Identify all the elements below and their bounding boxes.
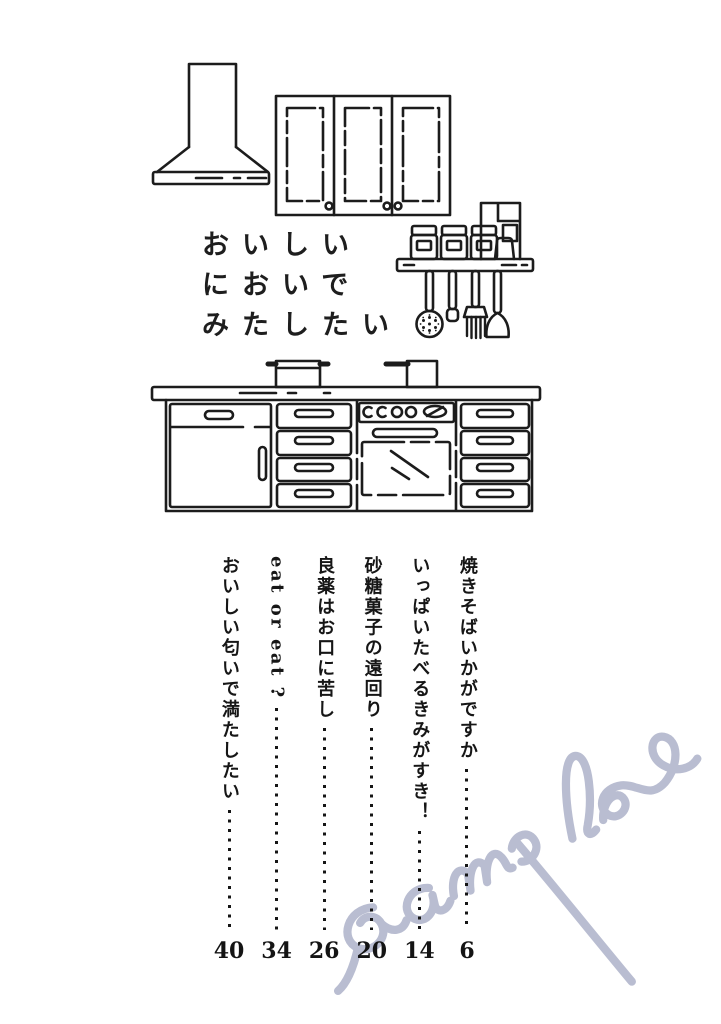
counter-icon xyxy=(152,387,540,511)
toc-entry-title: eat or eat ? xyxy=(267,556,287,700)
wall-cabinet-icon xyxy=(276,96,450,215)
toc-page-number: 6 xyxy=(459,940,474,962)
range-hood-icon xyxy=(153,64,269,184)
toc-dot-leader xyxy=(465,769,468,930)
toc-dot-leader xyxy=(275,708,278,930)
toc-dot-leader xyxy=(323,728,326,930)
page-title: おいしい においで みたしたい xyxy=(202,226,402,346)
page-title-line-3: みたしたい xyxy=(202,306,402,346)
spice-shelf-icon xyxy=(397,259,533,271)
toc-page-number: 40 xyxy=(214,940,245,962)
toc-dot-leader xyxy=(370,728,373,930)
toc-page-number: 20 xyxy=(356,940,387,962)
toc-entry-title: いっぱいたべるきみがすき！ xyxy=(409,556,429,823)
jar-icons xyxy=(411,226,497,259)
toc-page-number: 34 xyxy=(261,940,292,962)
hanging-utensil-icons xyxy=(417,271,509,338)
toc-page-number: 26 xyxy=(309,940,340,962)
table-of-contents: 焼きそばいかがですか 6 いっぱいたべるきみがすき！ 14 砂糖菓子の遠回り 2… xyxy=(212,556,484,962)
toc-entry: 良薬はお口に苦し 26 xyxy=(307,556,341,962)
page-title-line-2: においで xyxy=(202,266,402,306)
toc-entry: eat or eat ? 34 xyxy=(260,556,294,962)
toc-entry-title: 砂糖菓子の遠回り xyxy=(362,556,382,720)
toc-entry: 砂糖菓子の遠回り 20 xyxy=(355,556,389,962)
page-title-line-1: おいしい xyxy=(202,226,402,266)
toc-entry: おいしい匂いで満たしたい 40 xyxy=(212,556,246,962)
toc-entry-title: 焼きそばいかがですか xyxy=(457,556,477,761)
toc-entry: いっぱいたべるきみがすき！ 14 xyxy=(402,556,436,962)
cooking-pot-icons xyxy=(268,361,437,387)
toc-dot-leader xyxy=(228,810,231,930)
toc-entry: 焼きそばいかがですか 6 xyxy=(450,556,484,962)
toc-entry-title: 良薬はお口に苦し xyxy=(314,556,334,720)
toc-dot-leader xyxy=(418,831,421,931)
toc-page-number: 14 xyxy=(404,940,435,962)
book-page: sample xyxy=(0,0,721,1024)
toc-entry-title: おいしい匂いで満たしたい xyxy=(219,556,239,802)
